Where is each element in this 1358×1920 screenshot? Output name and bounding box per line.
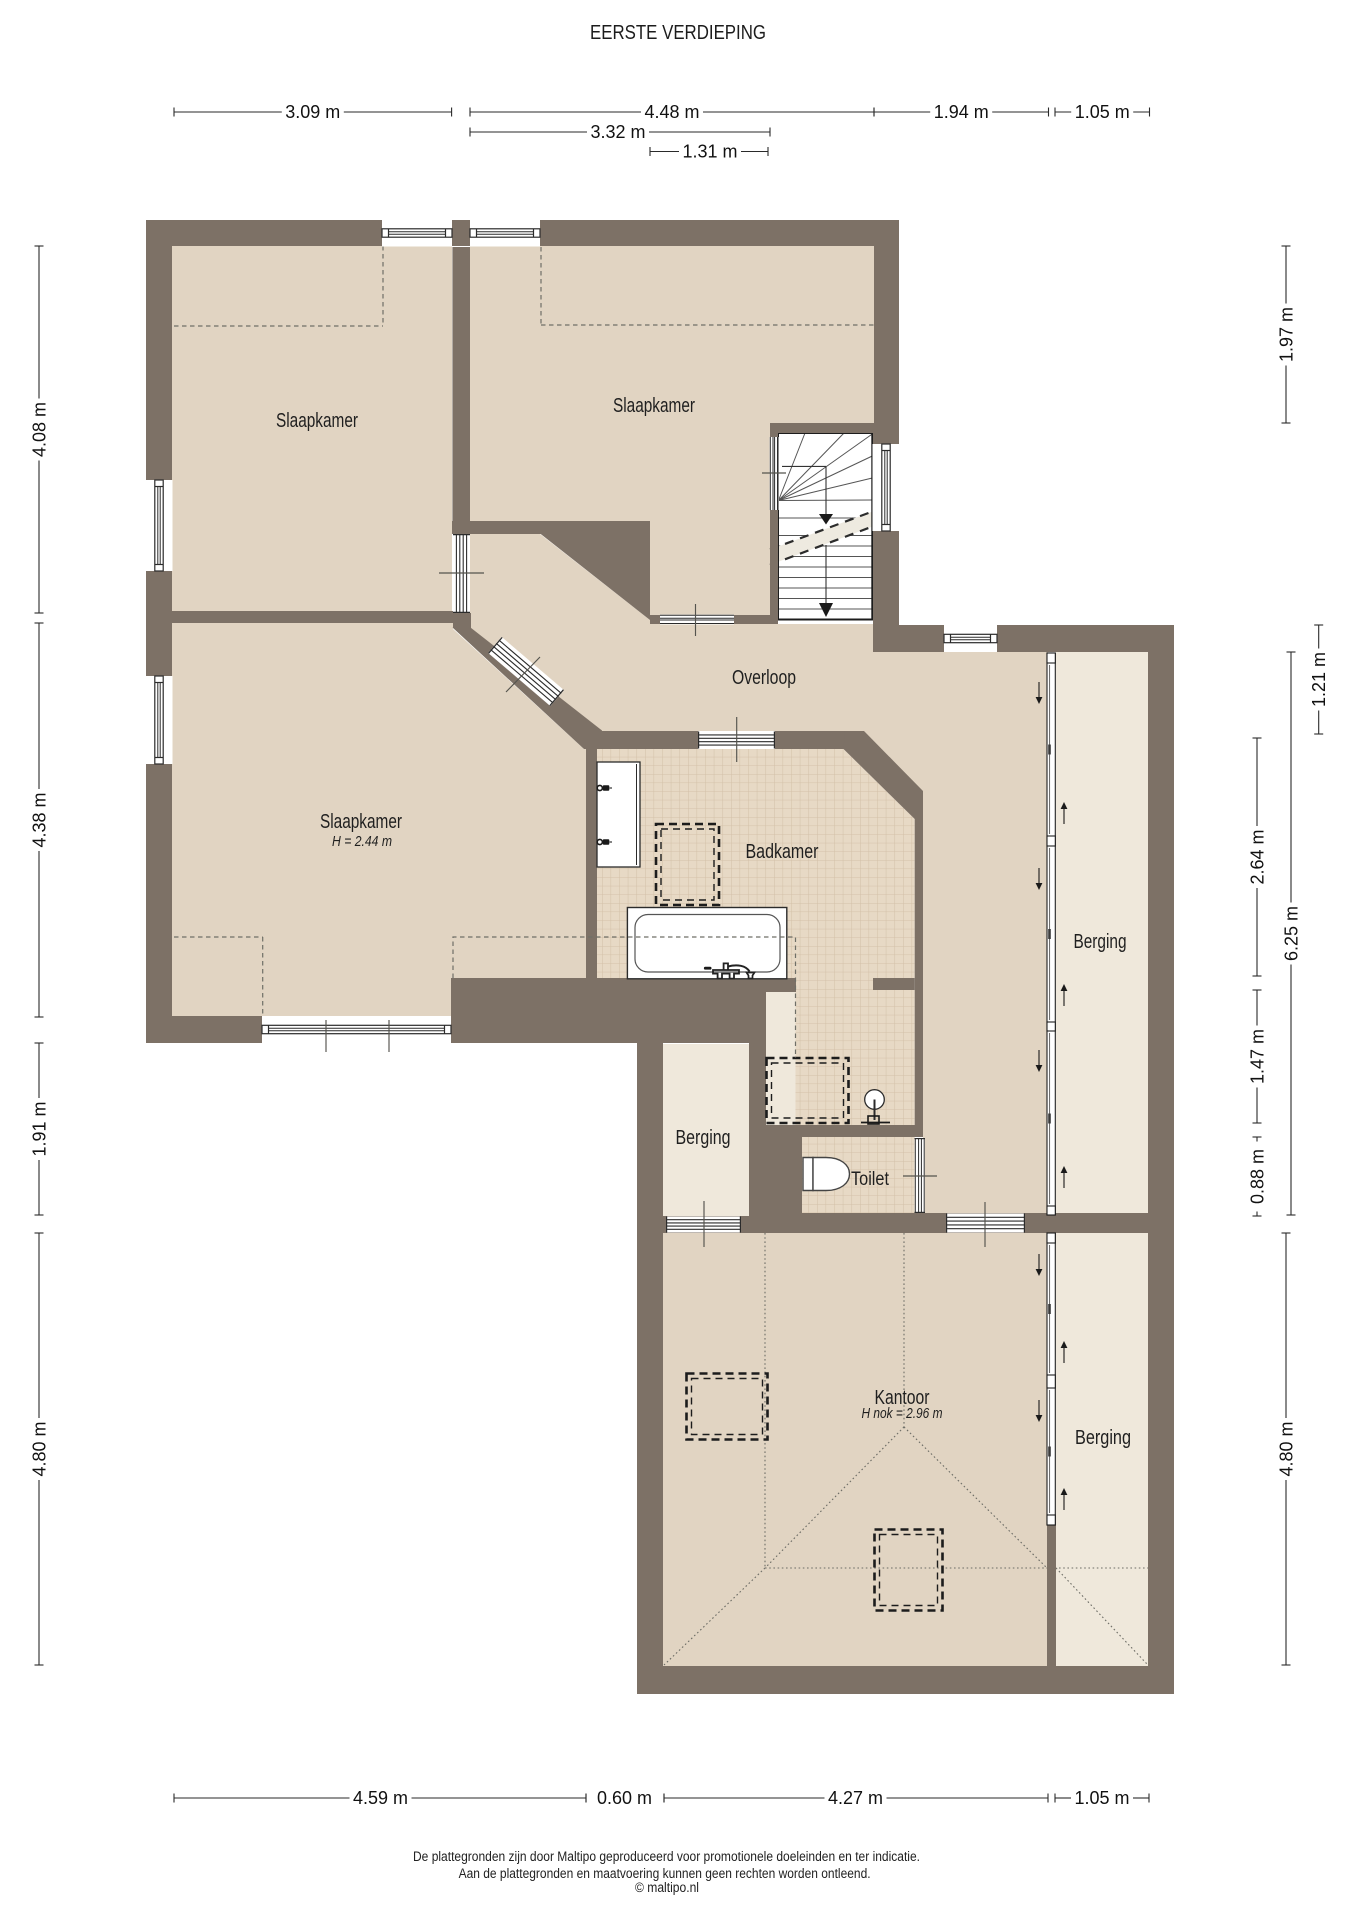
- svg-text:1.31 m: 1.31 m: [683, 141, 738, 162]
- svg-text:Berging: Berging: [676, 1127, 731, 1149]
- svg-text:EERSTE VERDIEPING: EERSTE VERDIEPING: [590, 21, 766, 44]
- svg-text:Toilet: Toilet: [851, 1169, 890, 1190]
- svg-text:Berging: Berging: [1074, 931, 1127, 953]
- svg-text:1.21 m: 1.21 m: [1308, 652, 1329, 707]
- svg-text:3.32 m: 3.32 m: [591, 121, 646, 142]
- svg-text:0.60 m: 0.60 m: [597, 1787, 652, 1808]
- svg-text:De plattegronden zijn door Mal: De plattegronden zijn door Maltipo gepro…: [413, 1849, 920, 1864]
- svg-text:4.38 m: 4.38 m: [29, 793, 50, 848]
- svg-text:4.08 m: 4.08 m: [29, 402, 50, 457]
- svg-text:H nok = 2.96 m: H nok = 2.96 m: [862, 1406, 943, 1422]
- svg-text:© maltipo.nl: © maltipo.nl: [635, 1880, 699, 1895]
- svg-text:1.05 m: 1.05 m: [1075, 101, 1130, 122]
- svg-text:4.48 m: 4.48 m: [645, 101, 700, 122]
- svg-text:Slaapkamer: Slaapkamer: [613, 395, 695, 417]
- svg-text:4.27 m: 4.27 m: [828, 1787, 883, 1808]
- svg-text:H = 2.44 m: H = 2.44 m: [332, 834, 392, 850]
- svg-text:6.25 m: 6.25 m: [1281, 906, 1302, 961]
- svg-text:Badkamer: Badkamer: [746, 841, 819, 863]
- svg-text:1.47 m: 1.47 m: [1247, 1029, 1268, 1084]
- svg-text:Aan de plattegronden en maatvo: Aan de plattegronden en maatvoering kunn…: [459, 1866, 871, 1881]
- svg-text:4.80 m: 4.80 m: [1276, 1422, 1297, 1477]
- svg-text:0.88 m: 0.88 m: [1247, 1149, 1268, 1204]
- svg-text:Slaapkamer: Slaapkamer: [276, 410, 358, 432]
- svg-text:4.80 m: 4.80 m: [29, 1422, 50, 1477]
- svg-text:3.09 m: 3.09 m: [285, 101, 340, 122]
- svg-text:1.05 m: 1.05 m: [1075, 1787, 1130, 1808]
- svg-text:1.94 m: 1.94 m: [934, 101, 989, 122]
- svg-text:4.59 m: 4.59 m: [353, 1787, 408, 1808]
- svg-text:Slaapkamer: Slaapkamer: [320, 811, 402, 833]
- svg-text:1.91 m: 1.91 m: [29, 1102, 50, 1157]
- svg-text:2.64 m: 2.64 m: [1247, 830, 1268, 885]
- svg-text:Overloop: Overloop: [732, 667, 796, 689]
- svg-text:Berging: Berging: [1075, 1427, 1131, 1449]
- svg-text:1.97 m: 1.97 m: [1276, 307, 1297, 362]
